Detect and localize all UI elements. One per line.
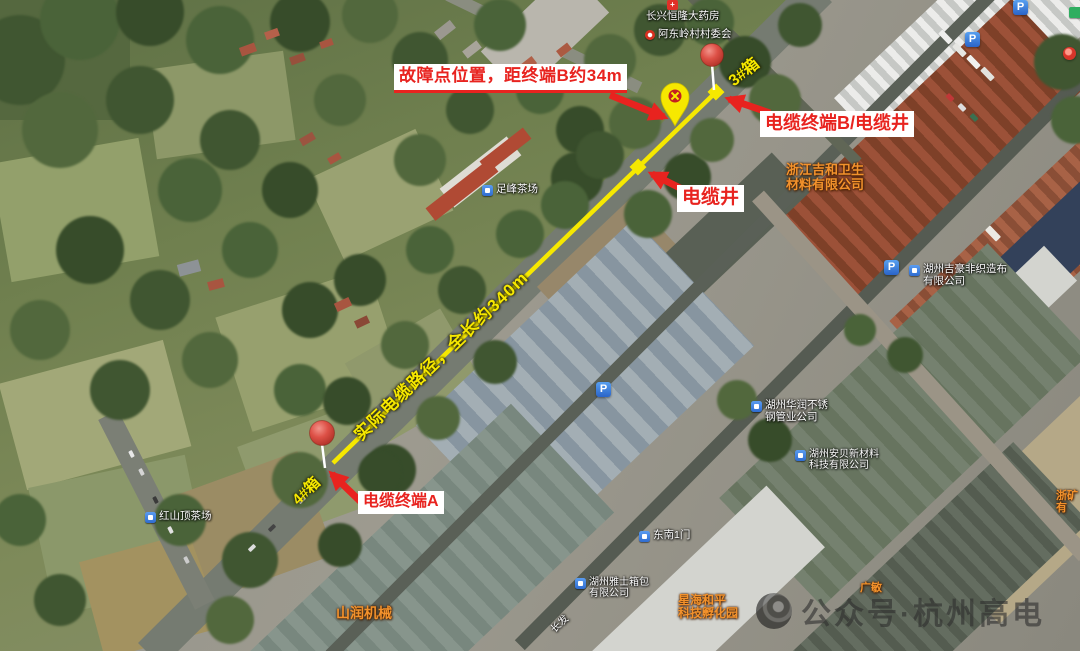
arrow-to-fault-point [610,95,664,117]
watermark-text: 公众号·杭州高电 [801,589,1045,633]
fault-point-label: 故障点位置，距终端B约34m [394,64,627,93]
pin-4-box [310,421,335,469]
annotated-satellite-map: 长兴恒隆大药房阿东岭村村委会足峰茶场浙江吉和卫生材料有限公司湖州吉豪非织造布有限… [0,0,1080,651]
terminal-b-label: 电缆终端B/电缆井 [760,111,914,137]
cable-route-overlay [0,0,1080,651]
cable-well-label: 电缆井 [677,185,744,212]
terminal-a-label: 电缆终端A [358,491,444,514]
watermark-logo-icon [756,593,792,629]
watermark: 公众号·杭州高电 [756,589,1045,633]
pin-3-box [701,44,724,91]
